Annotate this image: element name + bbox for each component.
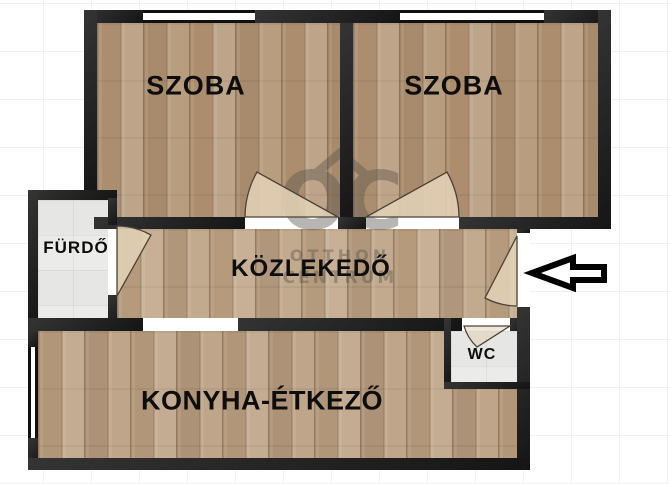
wall (28, 458, 530, 470)
wall (84, 10, 97, 198)
door-opening (108, 225, 117, 295)
wall (459, 217, 611, 229)
wall (28, 318, 143, 331)
door-opening (462, 318, 510, 331)
entry-door-opening (517, 233, 530, 307)
window (143, 10, 255, 23)
wall (517, 229, 530, 233)
wall (108, 198, 117, 225)
room1-label: SZOBA (146, 71, 246, 102)
wall (28, 190, 38, 331)
wall (338, 217, 366, 229)
wc-label: WC (468, 346, 497, 364)
floor-plan: OC OTTHON CENTRUM SZOBA SZOBA FÜRDŐ KÖZL… (0, 0, 669, 484)
room2-label: SZOBA (404, 71, 504, 102)
kitchen-label: KONYHA-ÉTKEZŐ (141, 386, 383, 417)
wall (255, 10, 400, 23)
wall (28, 190, 117, 200)
wall (28, 331, 38, 347)
door-opening (143, 318, 238, 331)
hallway-label: KÖZLEKEDŐ (231, 255, 391, 283)
window (400, 10, 544, 23)
wall (444, 318, 451, 389)
wall (238, 318, 462, 331)
entrance-arrow (532, 258, 604, 288)
wall (340, 23, 353, 229)
bathroom-label: FÜRDŐ (43, 238, 108, 258)
wall (444, 382, 530, 389)
window (28, 347, 38, 438)
wall (598, 10, 611, 229)
